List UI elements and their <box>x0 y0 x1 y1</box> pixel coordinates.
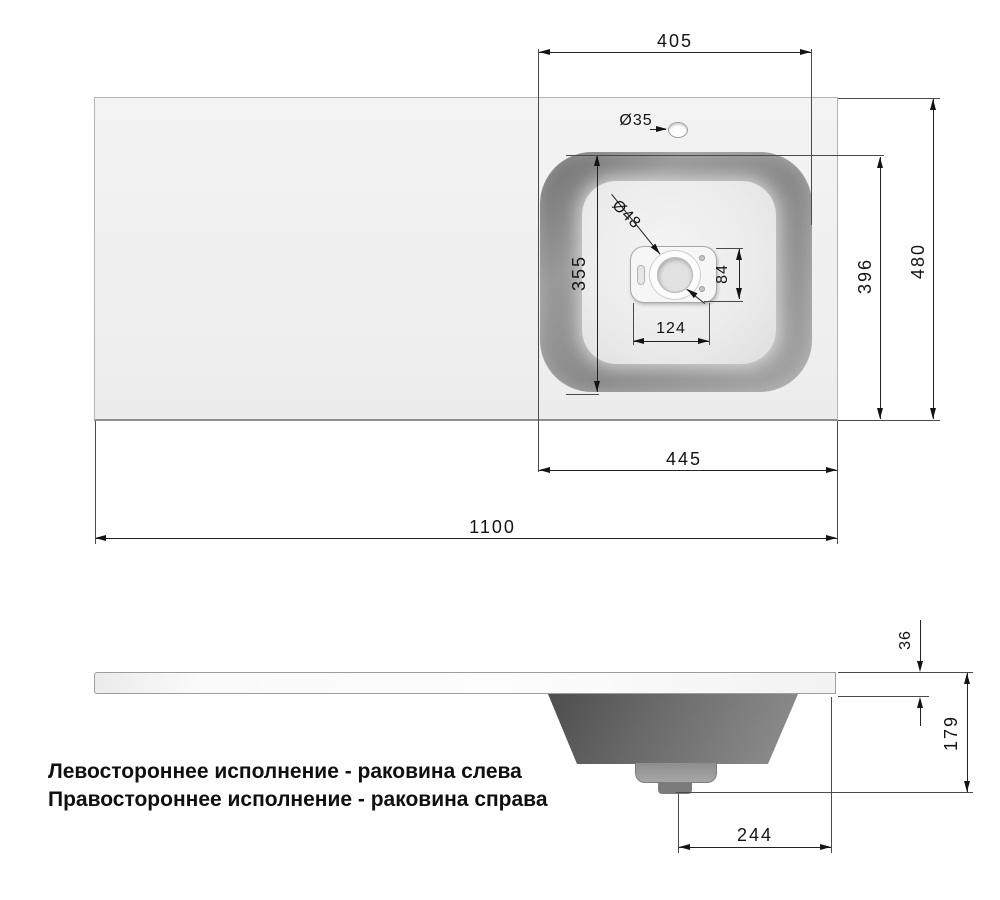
ext-line <box>838 420 940 421</box>
arrowhead <box>539 467 550 473</box>
dim-label-396: 396 <box>856 251 874 301</box>
dim-label-124: 124 <box>645 321 697 337</box>
ext-line <box>709 303 710 345</box>
ext-line <box>95 421 96 544</box>
faucet-hole <box>668 122 688 138</box>
arrowhead <box>820 844 831 850</box>
drain-flange-side <box>635 763 717 783</box>
ext-line <box>566 394 599 395</box>
arrowhead <box>736 249 742 260</box>
arrowhead <box>736 288 742 299</box>
arrowhead <box>917 697 923 708</box>
dim-line-480 <box>933 99 934 419</box>
arrowhead <box>656 126 667 132</box>
ext-line <box>633 303 634 345</box>
arrowhead <box>930 408 936 419</box>
note-left-hand-version: Левостороннее исполнение - раковина слев… <box>48 760 522 784</box>
arrowhead <box>698 338 709 344</box>
ext-line <box>716 248 743 249</box>
ext-line <box>831 697 832 853</box>
arrowhead <box>679 844 690 850</box>
technical-drawing-page: 405 Ø35 355 Ø48 84 124 396 480 445 <box>0 0 1000 900</box>
dim-line-405 <box>539 52 811 53</box>
ext-line <box>838 672 973 673</box>
dim-label-36: 36 <box>898 622 914 658</box>
arrowhead <box>826 467 837 473</box>
drain-screw-hole <box>699 255 705 261</box>
drain-screw-hole <box>699 286 705 292</box>
dim-label-405: 405 <box>645 32 705 50</box>
basin-side-profile <box>548 694 798 764</box>
arrowhead <box>877 157 883 168</box>
dim-label-244: 244 <box>725 826 785 844</box>
ext-line <box>566 155 884 156</box>
ext-line <box>838 98 940 99</box>
dim-line-244 <box>679 847 831 848</box>
countertop-side-view <box>94 672 836 694</box>
arrowhead <box>95 535 106 541</box>
arrowhead <box>800 49 811 55</box>
ext-line <box>678 794 679 853</box>
arrowhead <box>917 661 923 672</box>
ext-line <box>704 301 743 302</box>
dim-line-1100 <box>95 538 837 539</box>
dim-line-36-upper <box>920 620 921 664</box>
ext-line <box>838 696 929 697</box>
arrowhead <box>964 673 970 684</box>
dim-label-480: 480 <box>909 236 927 286</box>
note-right-hand-version: Правостороннее исполнение - раковина спр… <box>48 788 548 812</box>
dim-line-396 <box>880 157 881 419</box>
dim-line-179 <box>967 673 968 792</box>
dim-line-445 <box>539 470 837 471</box>
ext-line <box>811 49 812 225</box>
dim-label-179: 179 <box>942 708 960 758</box>
arrowhead <box>633 338 644 344</box>
arrowhead <box>877 408 883 419</box>
dim-line-355 <box>597 155 598 392</box>
dim-label-faucet: Ø35 <box>616 113 656 129</box>
arrowhead <box>964 781 970 792</box>
arrowhead <box>594 381 600 392</box>
arrowhead <box>539 49 550 55</box>
dim-label-355: 355 <box>570 248 588 298</box>
dim-label-445: 445 <box>654 450 714 468</box>
arrowhead <box>594 155 600 166</box>
ext-line <box>676 792 973 793</box>
ext-line <box>837 421 838 544</box>
arrowhead <box>930 99 936 110</box>
drain-overflow-slot <box>637 265 645 285</box>
arrowhead <box>826 535 837 541</box>
ext-line <box>538 49 539 472</box>
dim-label-1100: 1100 <box>455 518 530 536</box>
dim-label-84: 84 <box>715 256 731 292</box>
